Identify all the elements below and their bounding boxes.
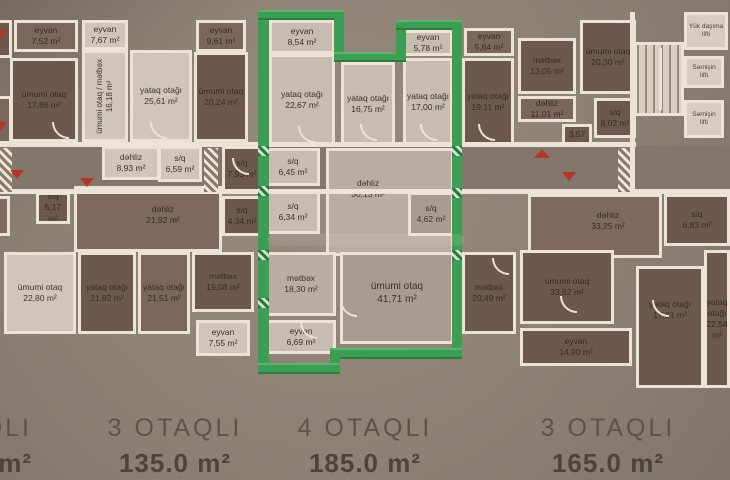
room-area-label: 8,02 m² <box>601 118 630 129</box>
highlight-tick <box>258 186 269 196</box>
room-eyvan-2: eyvan7,67 m² <box>82 20 128 50</box>
room-eyvan-7: eyvan8,54 m² <box>269 20 335 54</box>
room-area-label: 6,59 m² <box>166 164 195 175</box>
room-area-label: 21,92 m² <box>146 215 180 226</box>
summary-partial: QLI m² <box>0 414 32 479</box>
room-yataq-40: yataq otağı22,54 m² <box>704 250 730 388</box>
room-name-label: ümumi otaq <box>22 89 66 100</box>
room-name-label: s/q <box>279 156 308 167</box>
room-name-label: yataq otağı <box>347 93 389 104</box>
room-sq-17: s/q6,59 m² <box>158 146 202 182</box>
room-area-label: 22,67 m² <box>281 100 323 111</box>
corridor-wall-top <box>0 142 636 147</box>
room-name-label: eyvan <box>414 32 443 43</box>
room-eyvan-12: eyvan5,64 m² <box>464 28 514 56</box>
room-name-label: s/q <box>166 153 195 164</box>
room-sq-19: s/q5,17 m² <box>36 192 70 224</box>
red-arrow-icon <box>0 122 7 131</box>
room-area-label: 4,62 m² <box>417 214 446 225</box>
room-eyvan-5: eyvan9,61 m² <box>196 20 246 52</box>
room-area-label: 20,30 m² <box>586 57 630 68</box>
room-name-label: dəhliz <box>531 98 564 109</box>
room-umumi-29: ümumi otaq22,80 m² <box>4 252 76 334</box>
watermark <box>268 234 464 246</box>
room-name-label: eyvan <box>32 25 61 36</box>
room-area-label: 13,05 m² <box>530 66 564 77</box>
room-area-label: 6,83 m² <box>683 220 712 231</box>
room-umumi-15: ümumi otaq20,30 m² <box>580 20 636 94</box>
room-name-label: ümumi otaq / mətbəx <box>95 59 105 134</box>
summary-4-otaqli-185: 4 OTAQLI 185.0 m² <box>265 414 465 479</box>
room-name-label: mətbəx <box>206 271 240 282</box>
passenger-elevator-1: Sərnişin lifti <box>684 56 724 88</box>
room-area-label: 8,93 m² <box>117 163 146 174</box>
room-area-label: 17,81 m² <box>649 310 691 321</box>
room-area-label: 18,30 m² <box>284 284 318 295</box>
room-name-label: ümumi otaq <box>199 86 243 97</box>
room-area-label: 7,52 m² <box>32 36 61 47</box>
room-area-label: 41,71 m² <box>371 293 423 306</box>
room-sq-27: s/q6,83 m² <box>664 194 730 246</box>
room-yataq-39: yataq otağı17,81 m² <box>636 266 704 388</box>
room-area-label: 33,25 m² <box>591 221 625 232</box>
summary-area-label: m² <box>0 448 32 479</box>
room-name-label: eyvan <box>207 25 236 36</box>
highlight-tick <box>452 188 462 198</box>
room-area-label: 5,78 m² <box>414 43 443 54</box>
room-metbex-33: mətbəx18,30 m² <box>266 252 336 316</box>
highlight-tick <box>452 146 462 156</box>
room-area-label: 6,34 m² <box>279 212 308 223</box>
room-dehliz-26: dəhliz33,25 m² <box>528 194 662 258</box>
hatch-column <box>618 148 630 192</box>
summary-rooms-label: QLI <box>0 414 32 443</box>
room-area-label: 19,08 m² <box>206 282 240 293</box>
room-area-label: 5,17 m² <box>39 202 67 224</box>
room-area-label: 7,55 m² <box>209 338 238 349</box>
red-arrow-icon <box>10 170 24 179</box>
red-arrow-icon <box>562 172 576 181</box>
cut-room <box>0 196 10 236</box>
highlight-outline-top1 <box>258 10 344 20</box>
room-name-label: mətbəx <box>472 282 506 293</box>
room-area-label: 6,45 m² <box>279 167 308 178</box>
room-dehliz-16: dəhliz8,93 m² <box>102 146 160 180</box>
room-yataq-30: yataq otağı21,82 m² <box>78 252 136 334</box>
staircase <box>634 42 684 116</box>
room-name-label: yataq otağı <box>140 85 182 96</box>
red-arrow-icon <box>0 30 7 39</box>
room-dehliz-41: dəhliz11,01 m² <box>518 96 576 122</box>
red-arrow-icon <box>80 178 94 187</box>
room-yataq-31: yataq otağı21,51 m² <box>138 252 190 334</box>
room-sq-22: s/q6,34 m² <box>266 190 320 234</box>
room-name-label: s/q <box>417 203 446 214</box>
highlight-tick <box>258 298 269 308</box>
room-name-label: yataq otağı <box>407 91 449 102</box>
room-umumi-34: ümumi otaq41,71 m² <box>340 252 454 344</box>
room-name-label: yataq otağı <box>143 282 185 293</box>
staircase-divider <box>659 48 662 111</box>
room-area-label: 25,61 m² <box>140 96 182 107</box>
room-area-label: 19,11 m² <box>467 102 509 113</box>
room-name-label: s/q <box>228 205 257 216</box>
room-metbex-14: mətbəx13,05 m² <box>518 38 576 94</box>
room-area-label: 17,00 m² <box>407 102 449 113</box>
room-area-label: 16,75 m² <box>347 104 389 115</box>
highlight-outline-top2 <box>334 52 404 62</box>
room-name-label: yataq otağı <box>467 91 509 102</box>
room-name-label: dəhliz <box>591 210 625 221</box>
highlight-tick <box>258 146 269 156</box>
core-wall <box>630 12 635 194</box>
room-name-label: dəhliz <box>351 178 385 189</box>
room-area-label: 14,90 m² <box>559 347 593 358</box>
room-area-label: 6,69 m² <box>287 337 316 348</box>
highlight-outline-bottom2 <box>258 363 340 374</box>
summary-rooms-label: 4 OTAQLI <box>265 414 465 443</box>
room-name-label: yataq otağı <box>86 282 128 293</box>
summary-rooms-label: 3 OTAQLI <box>508 414 708 443</box>
room-name-label: ümumi otaq <box>586 46 630 57</box>
room-area-label: 16,18 m² <box>105 59 115 134</box>
freight-elevator: Yük daşıma lifti <box>684 12 728 50</box>
room-name-label: yataq otağı <box>706 297 727 319</box>
room-area-label: 5,64 m² <box>475 42 504 53</box>
room-name-label: s/q <box>279 201 308 212</box>
room-area-label: 8,54 m² <box>288 37 317 48</box>
red-arrow-icon <box>534 149 550 158</box>
room-sq-25: s/q4,34 m² <box>222 196 262 236</box>
room-area-label: 17,86 m² <box>22 100 66 111</box>
highlight-tick <box>258 250 269 260</box>
summary-area-label: 165.0 m² <box>508 448 708 479</box>
room-eyvan-38: eyvan14,90 m² <box>520 328 632 366</box>
room-umumi-6: ümumi otaq20,24 m² <box>194 52 248 142</box>
room-name-label: dəhliz <box>146 204 180 215</box>
room-area-label: 22,80 m² <box>18 293 62 304</box>
room-eyvan-32: eyvan7,55 m² <box>196 320 250 356</box>
cut-room <box>0 20 12 58</box>
summary-rooms-label: 3 OTAQLI <box>75 414 275 443</box>
room-name-label: eyvan <box>209 327 238 338</box>
room-name-label: eyvan <box>475 31 504 42</box>
room-area-label: 11,01 m² <box>531 109 564 120</box>
highlight-outline-bottom1 <box>330 348 462 359</box>
room-area-label: 20,24 m² <box>199 97 243 108</box>
room-area-label: 7,67 m² <box>91 35 120 46</box>
room-area-label: 22,54 m² <box>706 319 727 341</box>
room-name-label: s/q <box>683 209 712 220</box>
room-eyvan-0: eyvan7,52 m² <box>14 20 78 52</box>
room-name-label: dəhliz <box>117 152 146 163</box>
room-name-label: eyvan <box>288 26 317 37</box>
hatch-column <box>204 148 218 192</box>
summary-area-label: 185.0 m² <box>265 448 465 479</box>
room-name-label: ümumi otaq <box>545 276 589 287</box>
summary-3-otaqli-165: 3 OTAQLI 165.0 m² <box>508 414 708 479</box>
elevator-label: Sərnişin lifti <box>688 111 720 127</box>
summary-area-label: 135.0 m² <box>75 448 275 479</box>
room-area-label: 21,82 m² <box>86 293 128 304</box>
room-name-label: ümumi otaq <box>18 282 62 293</box>
room-name-label: mətbəx <box>530 55 564 66</box>
room-sq-24: s/q4,62 m² <box>408 192 454 236</box>
room-sq-21: s/q6,45 m² <box>266 148 320 186</box>
room-area-label: 9,61 m² <box>207 36 236 47</box>
room-area-label: 20,49 m² <box>472 293 506 304</box>
room-area-label: 21,51 m² <box>143 293 185 304</box>
room-name-label: eyvan <box>91 24 120 35</box>
room-umumi-37: ümumi otaq33,62 m² <box>520 250 614 324</box>
passenger-elevator-2: Sərnişin lifti <box>684 100 724 138</box>
room-name-label: mətbəx <box>284 273 318 284</box>
room-metbex-28: mətbəx19,08 m² <box>192 252 254 312</box>
floor-plan: eyvan7,52 m² ümumi otaq17,86 m² eyvan7,6… <box>0 0 730 480</box>
room-dehliz-20: dəhliz21,92 m² <box>74 186 222 252</box>
highlight-tick <box>452 250 462 260</box>
room-name-label: eyvan <box>559 336 593 347</box>
room-name-label: yataq otağı <box>281 89 323 100</box>
room-name-label: s/q <box>601 107 630 118</box>
elevator-label: Sərnişin lifti <box>688 64 720 80</box>
room-umumi-metbex-3: ümumi otaq / mətbəx16,18 m² <box>82 50 128 142</box>
room-area-label: 4,34 m² <box>228 216 257 227</box>
room-eyvan-10: eyvan5,78 m² <box>403 30 453 56</box>
room-name-label: ümumi otaq <box>371 280 423 293</box>
elevator-label: Yük daşıma lifti <box>688 23 724 39</box>
summary-3-otaqli-135: 3 OTAQLI 135.0 m² <box>75 414 275 479</box>
